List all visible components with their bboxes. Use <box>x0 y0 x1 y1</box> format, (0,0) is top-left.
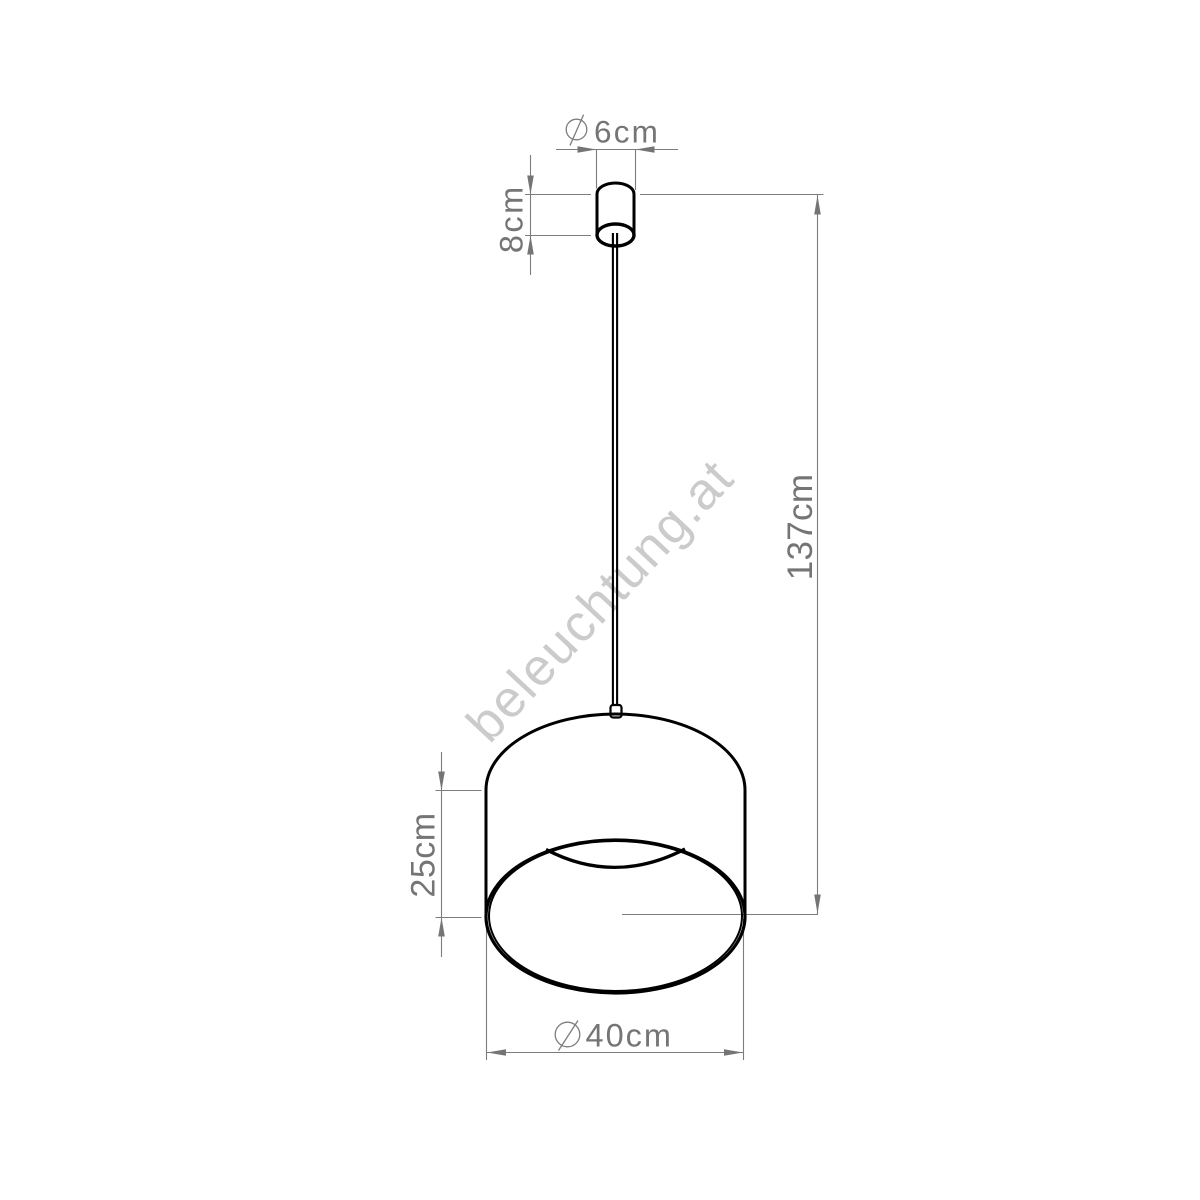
svg-text:6cm: 6cm <box>594 114 660 150</box>
svg-text:137cm: 137cm <box>781 474 820 581</box>
svg-text:40cm: 40cm <box>586 1018 673 1054</box>
svg-text:beleuchtung.at: beleuchtung.at <box>456 449 745 753</box>
svg-text:8cm: 8cm <box>494 184 530 253</box>
svg-text:25cm: 25cm <box>405 812 443 897</box>
